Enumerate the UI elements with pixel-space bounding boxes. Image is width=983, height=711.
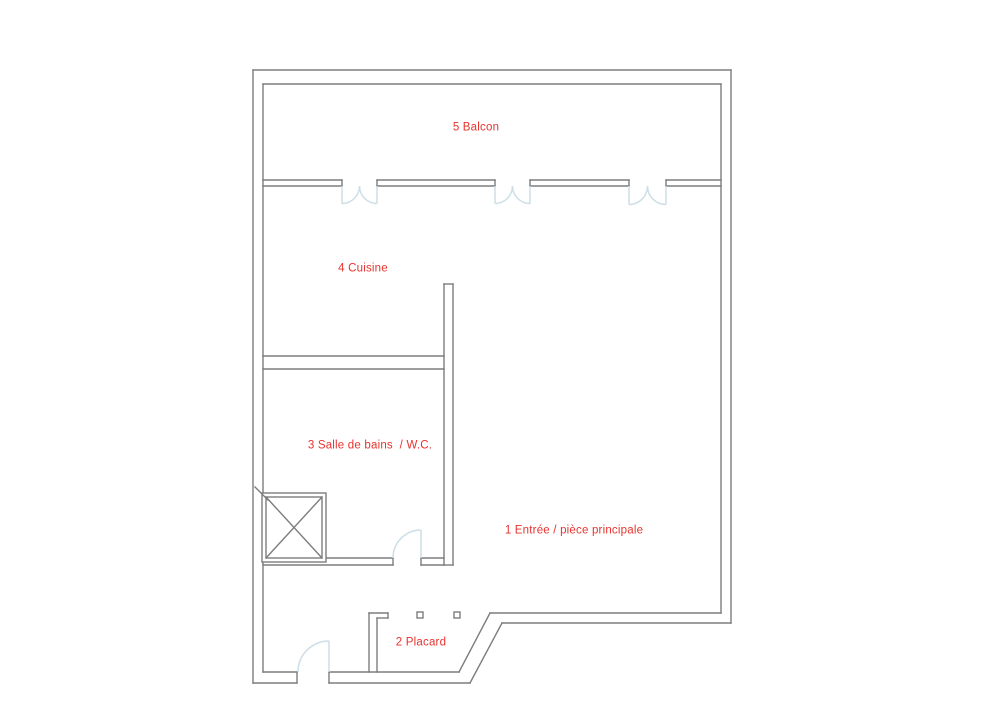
room-label-placard: 2 Placard bbox=[396, 637, 446, 649]
floorplan-drawing bbox=[0, 0, 983, 711]
door-swing-icon bbox=[393, 530, 421, 558]
room-label-balcon: 5 Balcon bbox=[453, 122, 499, 134]
room-label-entree-piece-principale: 1 Entrée / pièce principale bbox=[505, 525, 643, 537]
duct-shaft-hatch-icon bbox=[255, 487, 326, 562]
double-door-swing-icon bbox=[342, 186, 377, 204]
room-label-cuisine: 4 Cuisine bbox=[338, 263, 388, 275]
double-door-swing-icon bbox=[495, 186, 530, 204]
closet-post-icon bbox=[454, 612, 460, 618]
floorplan-canvas: 5 Balcon 4 Cuisine 3 Salle de bains / W.… bbox=[0, 0, 983, 711]
room-label-salle-de-bains: 3 Salle de bains / W.C. bbox=[308, 440, 432, 452]
bottom-walls bbox=[253, 612, 731, 683]
balcony-wall bbox=[263, 180, 721, 186]
double-door-swing-icon bbox=[629, 186, 666, 205]
closet-post-icon bbox=[417, 612, 423, 618]
entrance-door-swing-icon bbox=[298, 641, 329, 672]
outer-walls bbox=[253, 70, 731, 683]
